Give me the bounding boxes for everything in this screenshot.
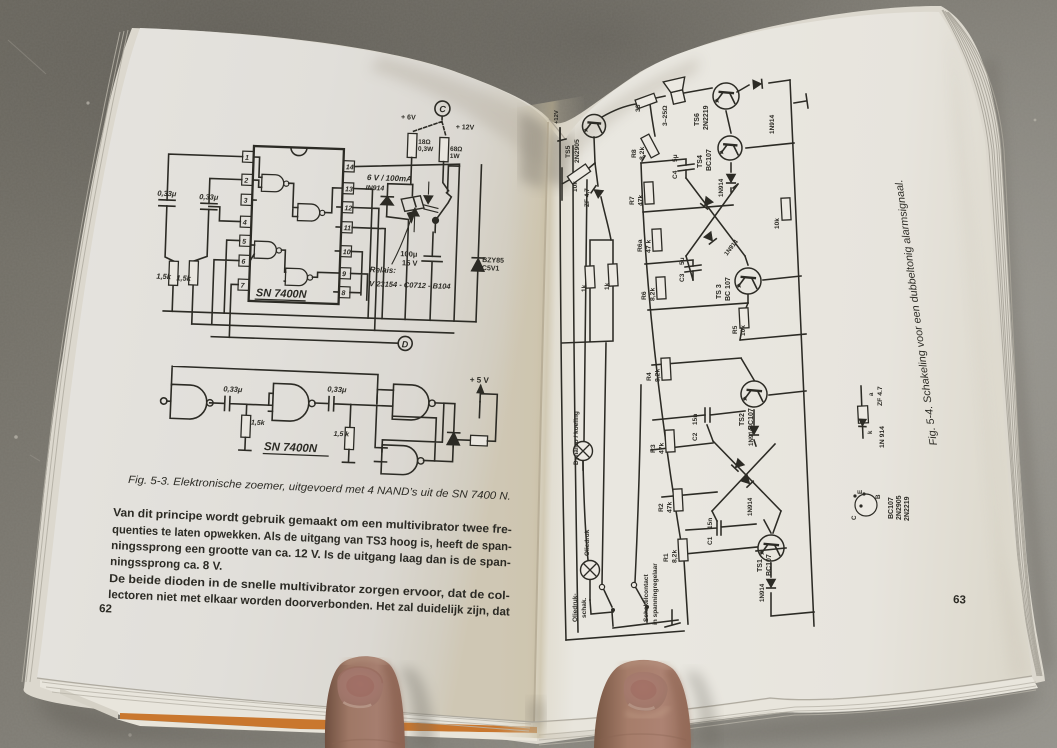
svg-text:4: 4 xyxy=(242,220,247,227)
svg-text:2N2219: 2N2219 xyxy=(904,496,911,521)
svg-text:C: C xyxy=(439,104,446,114)
svg-text:+ 12V: + 12V xyxy=(456,124,475,132)
svg-text:5: 5 xyxy=(242,239,246,246)
svg-text:C: C xyxy=(851,515,858,520)
svg-text:C3: C3 xyxy=(679,273,686,282)
svg-text:R7: R7 xyxy=(629,196,636,205)
svg-text:6 V / 100mA: 6 V / 100mA xyxy=(367,173,412,184)
svg-text:0,33μ: 0,33μ xyxy=(327,385,347,395)
svg-text:8,2k: 8,2k xyxy=(650,288,657,301)
svg-text:2N2219: 2N2219 xyxy=(703,105,710,130)
svg-text:ZF 4.7: ZF 4.7 xyxy=(877,386,884,406)
svg-text:D: D xyxy=(401,339,408,349)
svg-text:11: 11 xyxy=(344,225,352,232)
svg-text:C1: C1 xyxy=(707,536,714,545)
svg-text:8,2k: 8,2k xyxy=(672,550,679,563)
svg-text:8,2k: 8,2k xyxy=(639,147,646,160)
svg-text:ZF 4,7: ZF 4,7 xyxy=(584,188,591,207)
svg-text:R8: R8 xyxy=(631,149,638,158)
svg-text:BC107: BC107 xyxy=(888,497,895,519)
svg-text:47k: 47k xyxy=(659,442,666,454)
svg-text:BC107: BC107 xyxy=(706,149,713,171)
svg-text:2: 2 xyxy=(243,178,248,185)
svg-text:1: 1 xyxy=(245,155,249,162)
svg-text:8,2k: 8,2k xyxy=(655,369,662,382)
svg-text:BC107: BC107 xyxy=(766,554,773,576)
svg-text:TS5: TS5 xyxy=(565,145,572,158)
svg-text:14: 14 xyxy=(346,164,354,171)
svg-text:9: 9 xyxy=(342,271,346,278)
svg-text:R4: R4 xyxy=(646,372,653,381)
svg-text:IN914: IN914 xyxy=(365,185,384,193)
svg-text:B: B xyxy=(875,494,882,499)
svg-text:R6: R6 xyxy=(641,291,648,300)
svg-text:12: 12 xyxy=(344,205,352,212)
svg-text:Oliedruk-: Oliedruk- xyxy=(572,593,579,622)
svg-text:R2: R2 xyxy=(658,503,665,512)
svg-text:1N914: 1N914 xyxy=(718,178,725,197)
svg-text:2N2905: 2N2905 xyxy=(574,139,581,163)
svg-text:schak.: schak. xyxy=(581,598,588,618)
svg-text:BC107: BC107 xyxy=(748,408,755,430)
svg-text:2N2905: 2N2905 xyxy=(896,495,903,520)
svg-text:TS1: TS1 xyxy=(757,559,764,572)
svg-text:R3: R3 xyxy=(650,444,657,453)
svg-text:C4: C4 xyxy=(672,170,679,179)
svg-text:+ 5 V: + 5 V xyxy=(470,375,490,385)
svg-text:5μ: 5μ xyxy=(679,257,686,265)
svg-text:5μ: 5μ xyxy=(672,154,679,162)
svg-text:1,5k: 1,5k xyxy=(176,273,192,283)
svg-text:10k: 10k xyxy=(572,181,579,192)
svg-text:1k: 1k xyxy=(581,284,588,292)
svg-text:1,5k: 1,5k xyxy=(251,419,266,427)
svg-text:3: 3 xyxy=(243,198,247,205)
svg-text:15 V: 15 V xyxy=(402,258,418,268)
svg-text:33: 33 xyxy=(635,104,642,112)
svg-text:TS6: TS6 xyxy=(694,113,701,126)
svg-text:TS4: TS4 xyxy=(697,155,704,168)
svg-text:1N914: 1N914 xyxy=(747,497,754,516)
svg-text:Relais:: Relais: xyxy=(370,265,397,275)
svg-text:10: 10 xyxy=(343,249,351,256)
svg-text:47 k: 47 k xyxy=(646,240,653,253)
svg-text:1,5 k: 1,5 k xyxy=(333,431,350,439)
svg-text:0,33μ: 0,33μ xyxy=(157,189,177,199)
svg-text:10k: 10k xyxy=(740,325,747,336)
svg-text:C2: C2 xyxy=(692,432,699,441)
svg-text:0,33μ: 0,33μ xyxy=(199,192,219,202)
svg-text:10k: 10k xyxy=(774,218,781,229)
svg-text:TS2: TS2 xyxy=(739,413,746,426)
svg-text:1W: 1W xyxy=(450,153,461,160)
svg-text:15n: 15n xyxy=(692,414,699,425)
svg-text:SN 7400N: SN 7400N xyxy=(264,441,318,455)
svg-text:47k: 47k xyxy=(638,194,645,206)
svg-text:13: 13 xyxy=(345,186,353,193)
svg-text:C5V1: C5V1 xyxy=(482,265,500,273)
svg-text:0,33μ: 0,33μ xyxy=(223,384,243,394)
svg-text:1k: 1k xyxy=(604,282,611,290)
svg-text:1N914: 1N914 xyxy=(748,427,755,446)
svg-text:BC 107: BC 107 xyxy=(725,277,732,301)
svg-text:E: E xyxy=(857,490,864,494)
svg-text:62: 62 xyxy=(99,603,112,615)
svg-text:R5: R5 xyxy=(732,325,739,334)
svg-text:1,5k: 1,5k xyxy=(156,272,172,282)
svg-text:BZY85: BZY85 xyxy=(482,257,504,265)
svg-text:3–25Ω: 3–25Ω xyxy=(662,105,669,126)
svg-text:6: 6 xyxy=(241,259,245,266)
svg-text:Dynamo / koeling: Dynamo / koeling xyxy=(573,411,580,465)
svg-text:47k: 47k xyxy=(667,501,674,513)
svg-text:in spanningregelaar: in spanningregelaar xyxy=(652,563,659,625)
svg-text:R1: R1 xyxy=(663,553,670,562)
svg-text:Schakelcontact: Schakelcontact xyxy=(643,573,650,622)
svg-text:8: 8 xyxy=(341,290,345,297)
svg-text:R6a: R6a xyxy=(637,239,644,252)
svg-text:+ 6V: + 6V xyxy=(401,114,416,122)
svg-text:63: 63 xyxy=(953,594,966,606)
svg-text:1N 914: 1N 914 xyxy=(879,426,886,448)
svg-text:15n: 15n xyxy=(707,518,714,529)
svg-text:+12V: +12V xyxy=(554,110,560,124)
svg-text:TS 3: TS 3 xyxy=(716,284,723,299)
svg-text:1N914: 1N914 xyxy=(769,114,776,134)
svg-text:1N914: 1N914 xyxy=(759,583,766,602)
svg-text:Oliedruk: Oliedruk xyxy=(584,529,591,556)
svg-text:0,3W: 0,3W xyxy=(418,146,434,154)
